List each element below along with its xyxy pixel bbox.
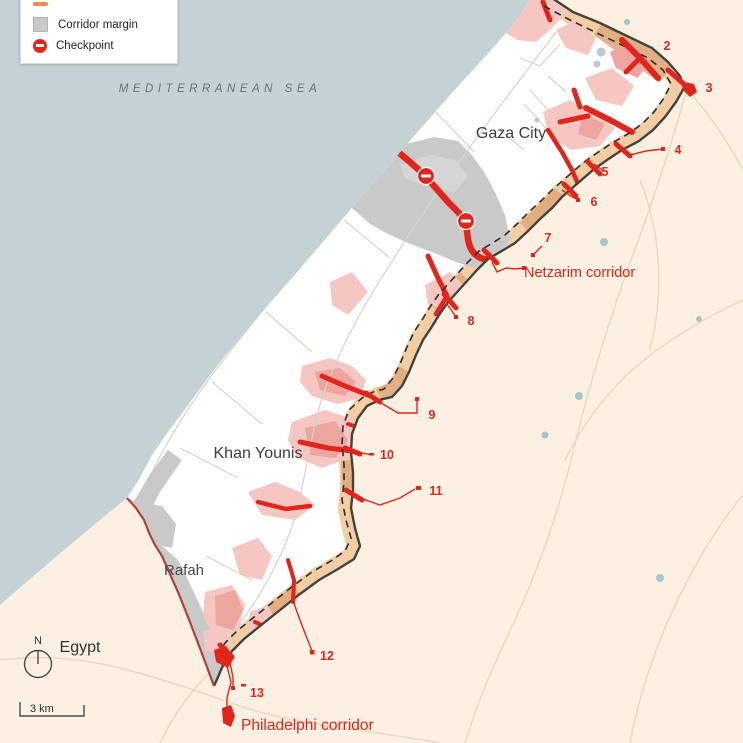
city-label-khan-younis: Khan Younis [214,445,303,462]
country-label-egypt: Egypt [60,639,101,656]
netzarim-corridor-label: Netzarim corridor [524,265,635,281]
checkpoint-label-10: 10 [380,448,394,462]
legend-label: Corridor margin [58,19,138,31]
checkpoint-icon [458,213,475,230]
checkpoint-label-12: 12 [320,649,334,663]
checkpoint-label-8: 8 [468,314,475,328]
checkpoint-icon [418,168,435,185]
checkpoint-label-4: 4 [675,143,682,157]
corridor-margin-swatch [33,17,48,32]
checkpoint-label-2: 2 [664,39,671,53]
checkpoint-label-6: 6 [591,195,598,209]
checkpoint-icon [33,39,47,53]
corridor-line-swatch [33,2,48,6]
checkpoint-label-7: 7 [545,231,552,245]
philadelphi-corridor-label: Philadelphi corridor [241,717,374,734]
city-label-rafah: Rafah [164,562,204,579]
compass-north-label: N [34,635,42,647]
legend-row-corridor [33,0,165,14]
legend-label: Checkpoint [56,40,114,52]
legend-row-corridor-margin: Corridor margin [33,14,165,35]
checkpoint-label-11: 11 [429,484,442,498]
map-stage: MEDITERRANEAN SEA Gaza City Khan Younis … [0,0,743,743]
checkpoint-label-13: 13 [250,686,264,700]
checkpoint-label-5: 5 [602,165,609,179]
sea-label: MEDITERRANEAN SEA [119,83,321,95]
legend: Corridor margin Checkpoint [20,0,178,64]
map-canvas: MEDITERRANEAN SEA Gaza City Khan Younis … [0,0,743,743]
checkpoint-label-3: 3 [706,81,713,95]
checkpoint-label-9: 9 [429,408,436,422]
scale-label: 3 km [30,703,54,715]
legend-row-checkpoint: Checkpoint [33,35,165,56]
city-label-gaza-city: Gaza City [476,125,546,142]
